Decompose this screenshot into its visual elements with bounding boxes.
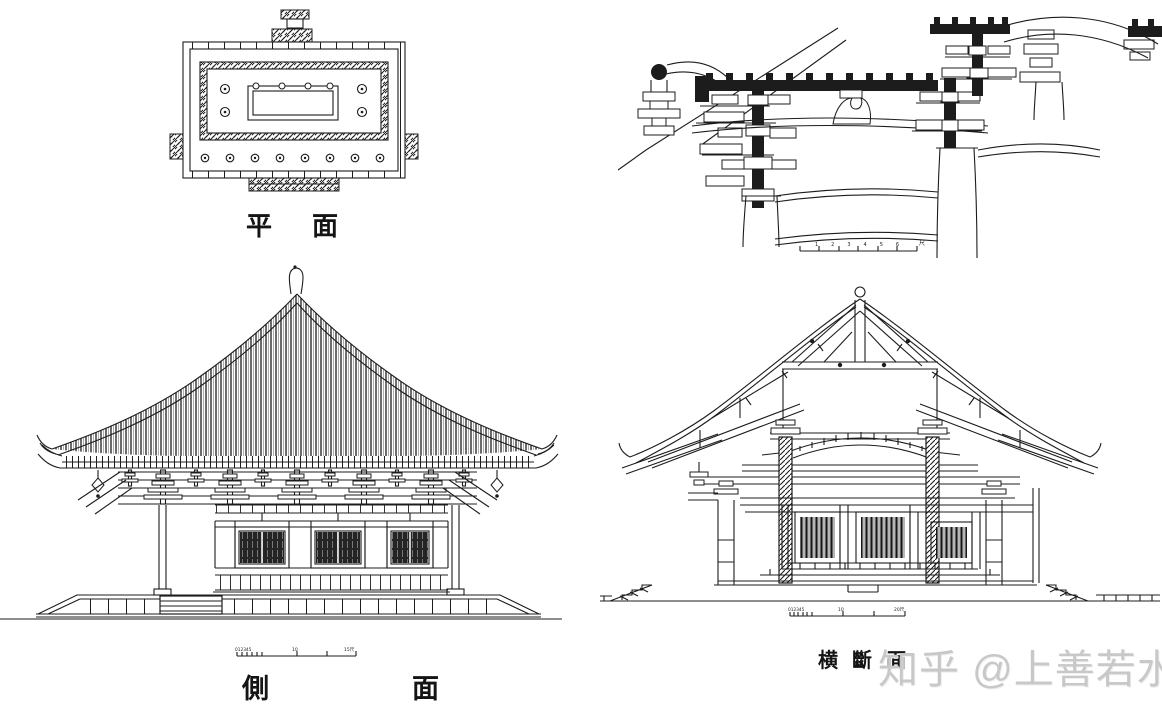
elevation-scale-mid: 10 [292, 647, 298, 653]
elevation-scale-minor: 012345 [235, 647, 252, 653]
eave-curve-lines [978, 17, 1158, 157]
side-elevation-label: 側面 [242, 667, 582, 706]
wall-and-windows [213, 505, 450, 592]
plan-altar-platform [248, 83, 338, 120]
hip-roof [37, 294, 557, 456]
section-scale-minor: 012345 [788, 607, 805, 613]
section-scale-mid: 10 [838, 607, 844, 613]
detail-scale-numbers: 123456 [815, 242, 912, 248]
floor-and-mound [600, 581, 1160, 601]
stone-platform [0, 595, 562, 619]
upper-right-bracket-cluster [930, 17, 1016, 96]
plan-porch-columns [201, 154, 384, 162]
section-scale-end: 20尺 [894, 607, 905, 613]
section-scale-bar: 012345 10 20尺 [788, 607, 905, 616]
king-post-truss [770, 300, 950, 439]
detail-scale-unit: 尺 [919, 240, 925, 247]
watermark: 知乎 @上善若水 [878, 637, 1162, 695]
section-eave-rafters [622, 372, 1098, 474]
plan-roof-finial-mark [281, 10, 309, 28]
lattice-window [311, 527, 365, 568]
plan-view-drawing [150, 5, 450, 210]
lattice-window [856, 512, 910, 563]
plan-wall-ring [200, 62, 388, 140]
plan-view-label: 平面 [246, 206, 378, 243]
lattice-window [795, 512, 840, 563]
elevation-scale-bar: 012345 10 15尺 [235, 647, 356, 656]
elevation-scale-end: 15尺 [344, 647, 355, 653]
detail-scale-bar: 123456 尺 [800, 240, 925, 251]
section-roof-profile [619, 287, 1101, 463]
roof-finial [289, 265, 303, 294]
lattice-window [387, 527, 433, 568]
coved-ceiling [700, 432, 1020, 484]
left-bracket-stack [638, 80, 680, 135]
interior-columns-cut [771, 420, 947, 583]
architectural-drawing-sheet: 平面 [0, 0, 1162, 706]
plan-interior-columns [221, 85, 367, 117]
bracket-detail-drawing: 123456 尺 [605, 0, 1162, 270]
lattice-window [235, 527, 289, 568]
cross-section-drawing: 012345 10 20尺 [595, 282, 1162, 622]
lattice-window [931, 522, 972, 563]
side-elevation-drawing: 012345 10 15尺 [0, 260, 575, 665]
platform-steps [160, 596, 222, 614]
